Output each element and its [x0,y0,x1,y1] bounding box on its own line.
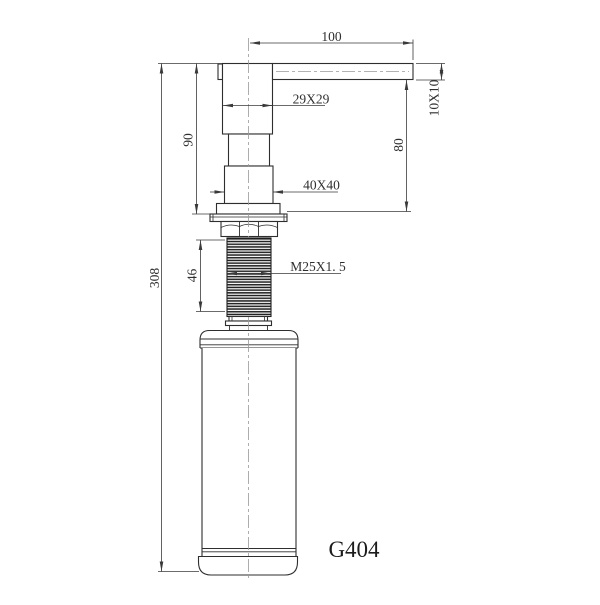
dispenser-outline [199,64,414,576]
dim-label-base-section: 40X40 [303,178,340,193]
dim-label-spout-to-deck: 80 [391,138,406,152]
dim-label-thread-spec: M25X1. 5 [290,259,346,274]
neck [229,134,270,166]
model-number-label: G404 [328,537,380,562]
dimension-lines [158,40,445,572]
dim-spout-section [416,64,445,81]
dim-label-spout-reach: 100 [321,29,342,44]
dim-label-spout-section: 10X10 [427,79,442,116]
dim-label-overall-height: 308 [147,268,162,289]
head-tab [218,64,223,80]
hex-nut [221,222,278,237]
technical-drawing: 100 29X29 10X10 80 90 40X40 M25X1. 5 46 … [0,0,600,600]
dim-label-body-section: 29X29 [293,92,330,107]
threaded-shaft [227,238,271,317]
drawing-canvas: 100 29X29 10X10 80 90 40X40 M25X1. 5 46 … [0,0,600,600]
dim-thread-length [196,240,225,312]
dim-label-body-height: 90 [181,133,196,147]
dim-label-thread-length: 46 [185,269,200,283]
bottle-bottom [199,557,298,576]
bottle-body-fill [202,348,296,557]
square-head [223,64,273,135]
